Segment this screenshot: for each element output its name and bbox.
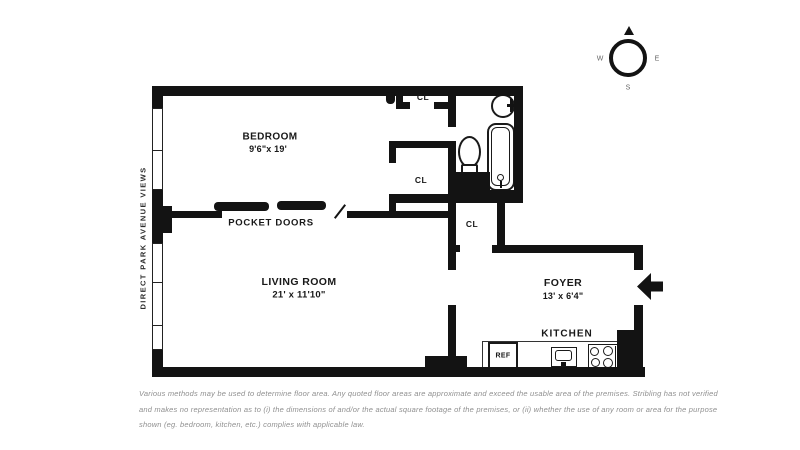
wall-stub — [453, 245, 460, 252]
wall-closet-mid-bottom — [389, 194, 456, 203]
wall-bathroom-right — [514, 86, 523, 203]
compass-west-label: W — [597, 56, 604, 63]
wall-closet-mid-top — [396, 141, 456, 148]
wall-foyer-right — [634, 305, 643, 331]
kitchen-label: KITCHEN — [541, 329, 592, 340]
compass-east-label: E — [655, 56, 660, 63]
closet-label-hall: CL — [466, 219, 478, 229]
pocket-doors-label: POCKET DOORS — [228, 218, 313, 229]
window-mullion — [152, 150, 163, 151]
window — [152, 108, 163, 190]
side-note: DIRECT PARK AVENUE VIEWS — [139, 166, 148, 309]
foyer-dims: 13' x 6'4" — [543, 291, 584, 301]
burner-icon — [591, 358, 600, 367]
wall-closet-stub — [434, 102, 456, 109]
living-room-label: LIVING ROOM — [262, 276, 337, 288]
entry-arrow-icon — [637, 271, 663, 302]
bathtub-icon — [487, 123, 515, 191]
wall-bathroom-bottom — [488, 190, 523, 203]
sink-faucet-icon — [510, 99, 513, 112]
kitchen-sink-icon — [551, 347, 577, 367]
wall-left — [152, 86, 163, 110]
foyer-label: FOYER — [544, 277, 582, 289]
stove-icon — [588, 344, 618, 368]
closet-label-mid: CL — [415, 175, 427, 185]
bathtub-drain-icon — [497, 174, 504, 181]
compass-north-icon — [624, 26, 634, 35]
wall-hall-closet-right — [497, 203, 505, 247]
burner-icon — [590, 347, 599, 356]
window-mullion — [152, 325, 163, 326]
pocket-door-panel-icon — [214, 202, 269, 211]
wall-segment — [448, 96, 456, 127]
wall-living-right — [448, 203, 456, 270]
disclaimer-line: shown (eg. bedroom, kitchen, etc.) compl… — [139, 420, 718, 429]
wall-bottom — [152, 367, 645, 377]
compass-ring-icon — [609, 39, 647, 77]
pocket-door-panel-icon — [277, 201, 326, 210]
living-room-dims: 21' x 11'10" — [272, 290, 325, 301]
wall-closet-stub — [396, 102, 410, 109]
kitchen-sink-basin-icon — [555, 350, 572, 361]
disclaimer-line: and makes no representation as to (i) th… — [139, 405, 718, 414]
wall-kitchen-left-block — [425, 356, 467, 368]
disclaimer: Various methods may be used to determine… — [139, 389, 718, 436]
refrigerator-label: REF — [496, 352, 511, 359]
bathtub-drain-icon — [500, 181, 502, 188]
closet-door-icon — [386, 92, 395, 104]
wall-foyer-right — [634, 245, 643, 270]
wall-pocket-right — [347, 211, 456, 218]
stove-panel-divider — [615, 346, 616, 367]
window-mullion — [152, 282, 163, 283]
kitchen-sink-faucet-icon — [561, 362, 566, 366]
wall-pocket-left — [166, 211, 222, 218]
wall-foyer-top — [492, 245, 643, 253]
bedroom-dims: 9'6"x 19' — [249, 144, 287, 154]
wall-kitchen-right — [617, 330, 643, 377]
wall-closet-mid-left — [389, 141, 396, 163]
window — [152, 243, 163, 350]
floor-plan: W E S REF — [0, 0, 800, 450]
disclaimer-line: Various methods may be used to determine… — [139, 389, 718, 398]
burner-icon — [603, 346, 613, 356]
refrigerator: REF — [488, 342, 518, 369]
closet-label-top: CL — [417, 92, 429, 102]
bedroom-label: BEDROOM — [242, 132, 297, 143]
wall-break-mark — [334, 204, 346, 219]
wall-top — [152, 86, 523, 96]
compass-south-label: S — [626, 85, 631, 92]
